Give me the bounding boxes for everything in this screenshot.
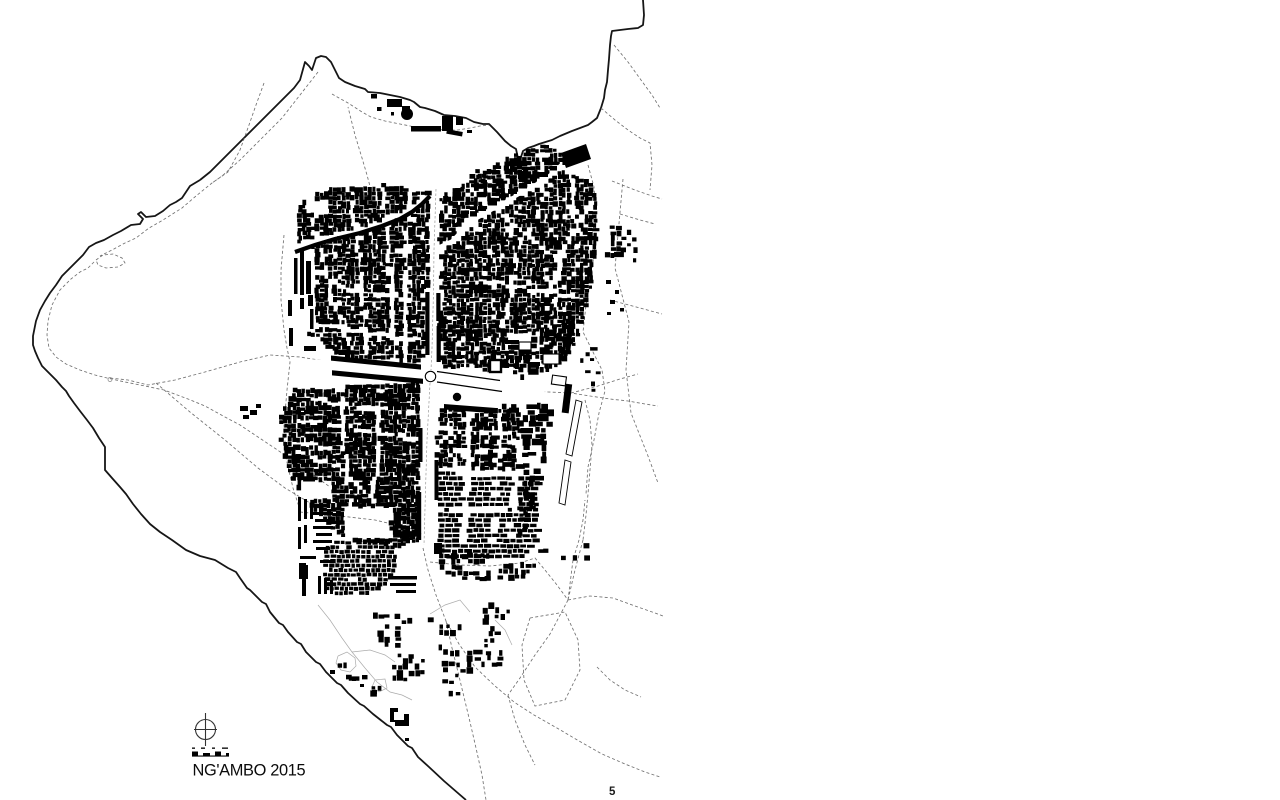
svg-text:NG'AMBO 2015: NG'AMBO 2015: [193, 762, 306, 780]
svg-text:5: 5: [609, 786, 616, 798]
